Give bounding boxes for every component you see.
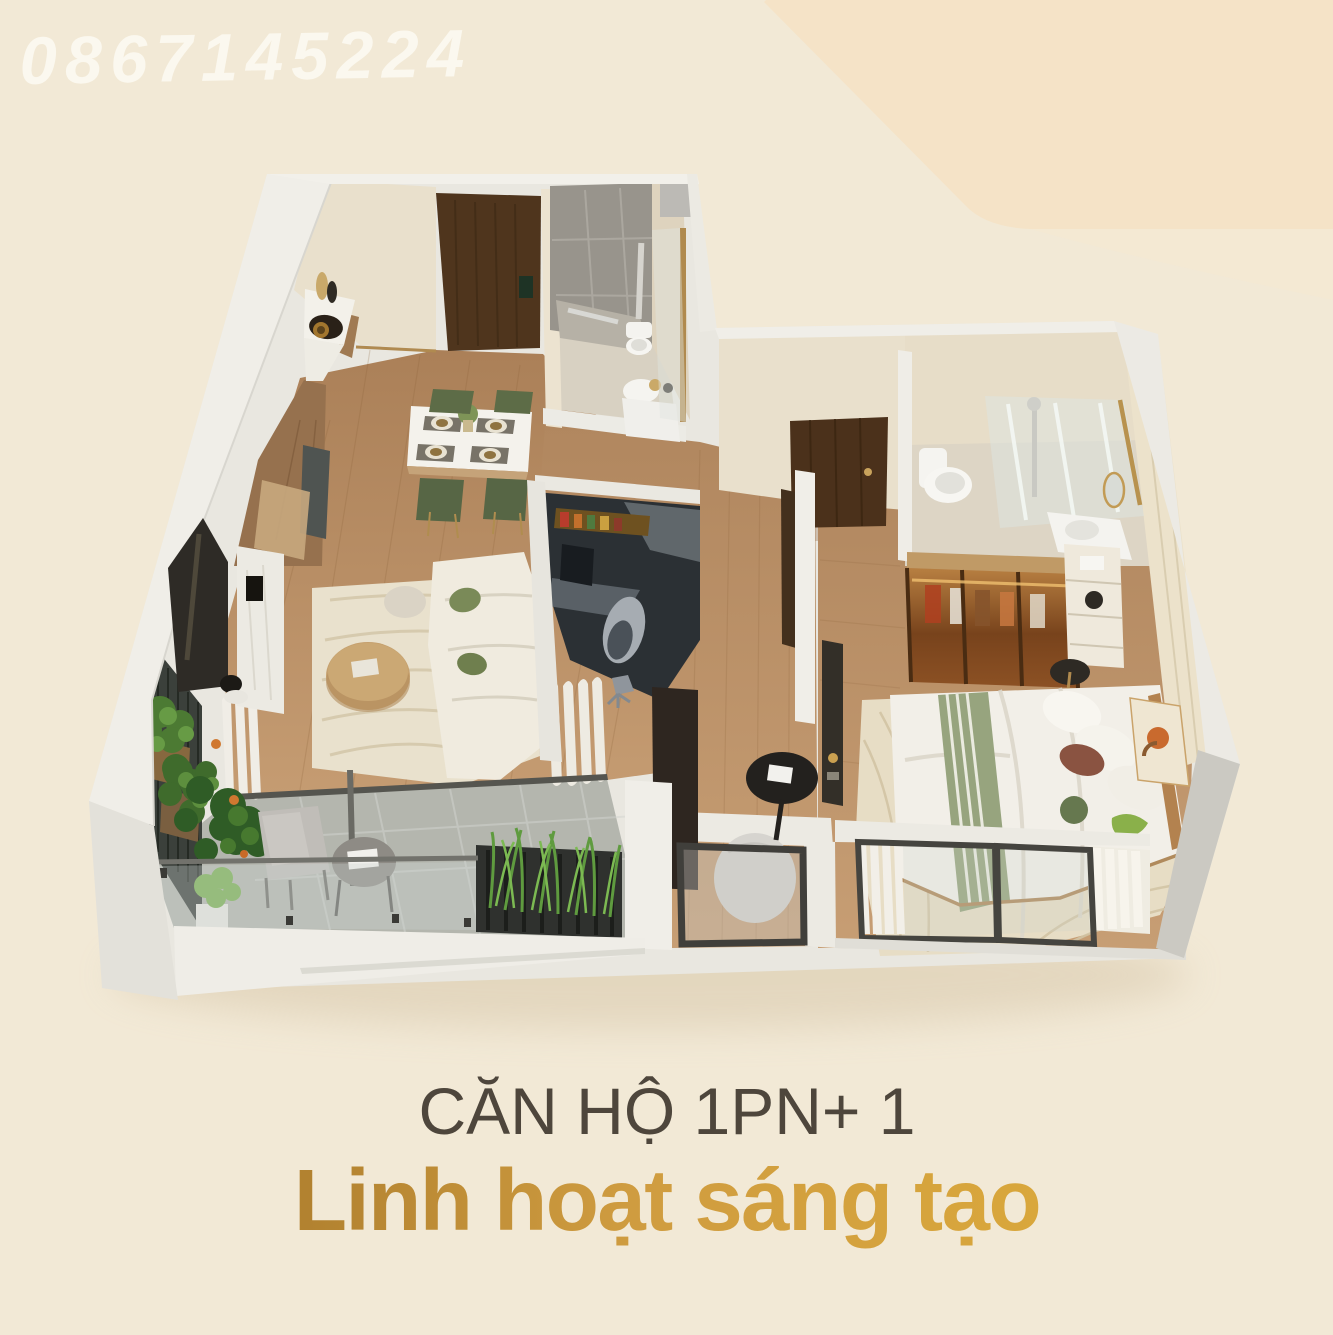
svg-text:Linh hoạt sáng tạo: Linh hoạt sáng tạo <box>294 1152 1040 1249</box>
svg-text:CĂN HỘ 1PN+ 1: CĂN HỘ 1PN+ 1 <box>419 1074 916 1148</box>
svg-text:0867145224: 0867145224 <box>19 16 473 99</box>
